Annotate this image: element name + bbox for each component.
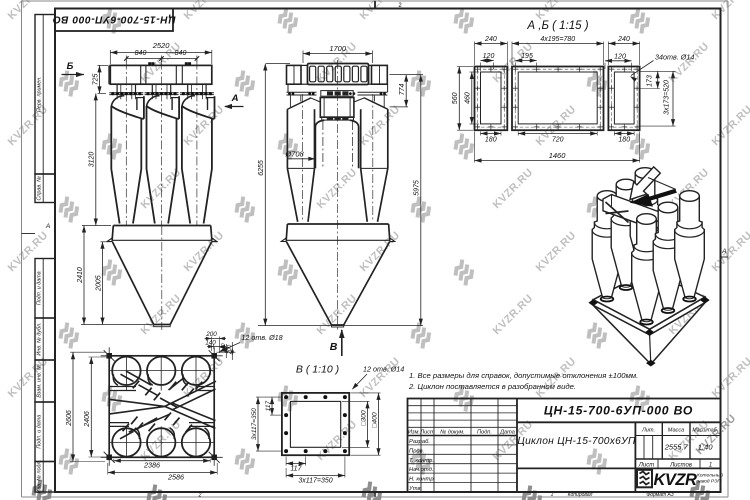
svg-text:Инв. № дубл.: Инв. № дубл. <box>37 322 43 355</box>
svg-text:Подп. и дата: Подп. и дата <box>37 415 43 449</box>
svg-text:2606: 2606 <box>66 410 73 427</box>
svg-text:173: 173 <box>647 75 654 87</box>
svg-text:5975: 5975 <box>414 180 421 196</box>
svg-text:Масштаб: Масштаб <box>692 428 717 434</box>
svg-text:120: 120 <box>614 53 626 60</box>
svg-text:Справ. №: Справ. № <box>37 176 43 201</box>
svg-text:3х117=350: 3х117=350 <box>298 478 332 485</box>
svg-text:Лит.: Лит. <box>641 428 655 434</box>
svg-text:Н. контр.: Н. контр. <box>409 477 435 483</box>
svg-text:240: 240 <box>617 36 630 43</box>
svg-text:2. Циклон поставляется в разо: 2. Циклон поставляется в разобранном вид… <box>408 382 576 391</box>
svg-text:Изм.: Изм. <box>408 429 420 435</box>
svg-text:2410: 2410 <box>77 267 84 284</box>
svg-text:4x195=780: 4x195=780 <box>540 36 575 43</box>
svg-text:В: В <box>330 341 338 353</box>
svg-text:Котельный: Котельный <box>697 472 723 479</box>
svg-text:1700: 1700 <box>329 44 347 53</box>
svg-text:195: 195 <box>521 53 533 60</box>
svg-text:3х117=350: 3х117=350 <box>251 408 258 440</box>
svg-text:117: 117 <box>290 466 302 473</box>
svg-text:2520: 2520 <box>152 41 171 50</box>
svg-text:Т. контр.: Т. контр. <box>409 458 434 464</box>
svg-text:завод РЭП: завод РЭП <box>696 479 721 485</box>
svg-text:ЦН-15-700-6УП-000 ВО: ЦН-15-700-6УП-000 ВО <box>52 13 175 24</box>
svg-text:2005: 2005 <box>95 275 102 292</box>
svg-text:12 отв. Ø14: 12 отв. Ø14 <box>363 365 404 374</box>
svg-text:KVZR: KVZR <box>654 471 698 489</box>
svg-text:А: А <box>45 223 50 230</box>
svg-text:Б: Б <box>67 61 74 72</box>
svg-text:180: 180 <box>618 137 630 144</box>
svg-text:Разраб.: Разраб. <box>409 439 430 445</box>
svg-text:6255: 6255 <box>258 160 265 176</box>
svg-text:180: 180 <box>485 137 497 144</box>
svg-text:Взам. инв. №: Взам. инв. № <box>37 364 43 398</box>
svg-text:Инв. № подл.: Инв. № подл. <box>37 460 43 493</box>
svg-text:1. Все размеры для справок, д: 1. Все размеры для справок, допустимые о… <box>409 371 638 380</box>
svg-text:1: 1 <box>709 462 712 468</box>
svg-text:Масса: Масса <box>668 428 685 434</box>
svg-text:560: 560 <box>452 92 459 104</box>
svg-text:□300: □300 <box>360 410 367 426</box>
svg-text:Дата: Дата <box>499 429 515 435</box>
svg-text:□400: □400 <box>371 412 378 428</box>
svg-text:Подп.: Подп. <box>477 429 492 435</box>
svg-text:200: 200 <box>227 344 233 355</box>
svg-text:120: 120 <box>483 53 495 60</box>
svg-text:2386: 2386 <box>143 461 160 470</box>
svg-text:3х173=520: 3х173=520 <box>663 80 670 115</box>
svg-text:460: 460 <box>465 92 472 104</box>
svg-text:200: 200 <box>205 331 217 338</box>
svg-text:1460: 1460 <box>549 151 567 160</box>
svg-text:Подп. и дата: Подп. и дата <box>37 271 43 305</box>
svg-text:Нач.отд.: Нач.отд. <box>409 467 433 473</box>
svg-text:№ докум.: № докум. <box>440 429 465 435</box>
svg-text:840: 840 <box>135 50 147 57</box>
svg-text:117: 117 <box>265 401 272 412</box>
svg-text:Ø708: Ø708 <box>284 150 304 159</box>
svg-text:Листов: Листов <box>669 462 692 468</box>
svg-text:34отв. Ø14: 34отв. Ø14 <box>655 52 694 61</box>
svg-text:А ,Б ( 1:15 ): А ,Б ( 1:15 ) <box>526 20 588 32</box>
svg-text:140: 140 <box>205 340 216 347</box>
svg-text:720: 720 <box>552 137 564 144</box>
svg-text:Утв.: Утв. <box>408 486 422 492</box>
svg-text:840: 840 <box>175 50 187 57</box>
svg-text:Лист: Лист <box>419 429 435 435</box>
svg-text:725: 725 <box>92 73 99 85</box>
svg-text:1:40: 1:40 <box>698 443 713 452</box>
svg-text:В ( 1:10 ): В ( 1:10 ) <box>296 364 339 376</box>
svg-text:2406: 2406 <box>84 411 91 428</box>
svg-text:Перв. примен.: Перв. примен. <box>37 76 43 112</box>
svg-text:2: 2 <box>198 493 202 499</box>
svg-text:Пров.: Пров. <box>409 448 424 454</box>
svg-text:774: 774 <box>399 84 406 96</box>
svg-text:3120: 3120 <box>89 152 96 168</box>
svg-text:2586: 2586 <box>167 473 184 482</box>
svg-text:А: А <box>231 93 239 104</box>
svg-text:А: А <box>721 248 726 255</box>
svg-text:Циклон ЦН-15-700х6УП: Циклон ЦН-15-700х6УП <box>517 436 636 447</box>
svg-text:2555,7: 2555,7 <box>664 443 689 452</box>
svg-text:12 отв. Ø18: 12 отв. Ø18 <box>241 333 282 342</box>
svg-text:ЦН-15-700-6УП-000 ВО: ЦН-15-700-6УП-000 ВО <box>544 404 693 418</box>
svg-text:Лист: Лист <box>638 462 654 468</box>
svg-text:240: 240 <box>484 36 497 43</box>
